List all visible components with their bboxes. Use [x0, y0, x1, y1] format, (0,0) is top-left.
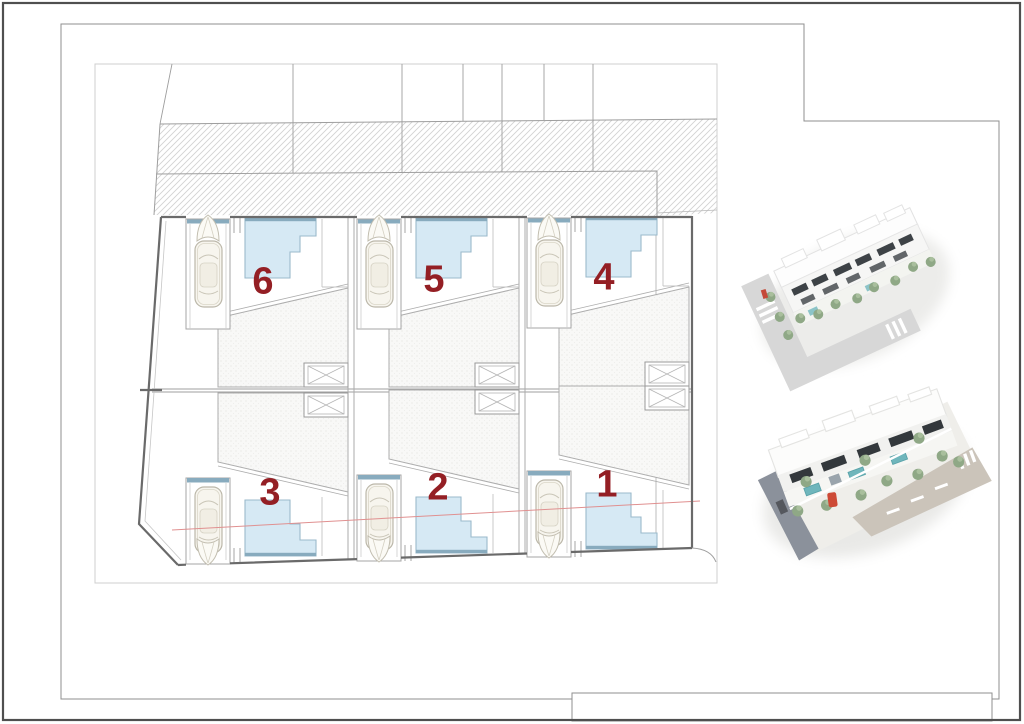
road-band [154, 119, 717, 216]
unit-4-graphics [527, 214, 689, 386]
unit-number-3: 3 [259, 473, 280, 511]
unit-5-graphics [357, 215, 519, 387]
parcel-corner-curve [692, 548, 716, 562]
unit-number-4: 4 [593, 258, 614, 296]
unit-number-1: 1 [596, 465, 617, 503]
plan-sheet: 6 5 4 3 2 1 [0, 0, 1024, 724]
unit-number-6: 6 [252, 262, 273, 300]
unit-number-5: 5 [423, 260, 444, 298]
aerial-render-bottom [739, 373, 1001, 583]
plan-area [95, 64, 717, 583]
aerial-render-top [735, 194, 971, 396]
neighbor-plots-strip [160, 64, 593, 124]
title-block [572, 693, 992, 721]
site-plan-drawing [0, 0, 1024, 724]
unit-number-2: 2 [427, 468, 448, 506]
